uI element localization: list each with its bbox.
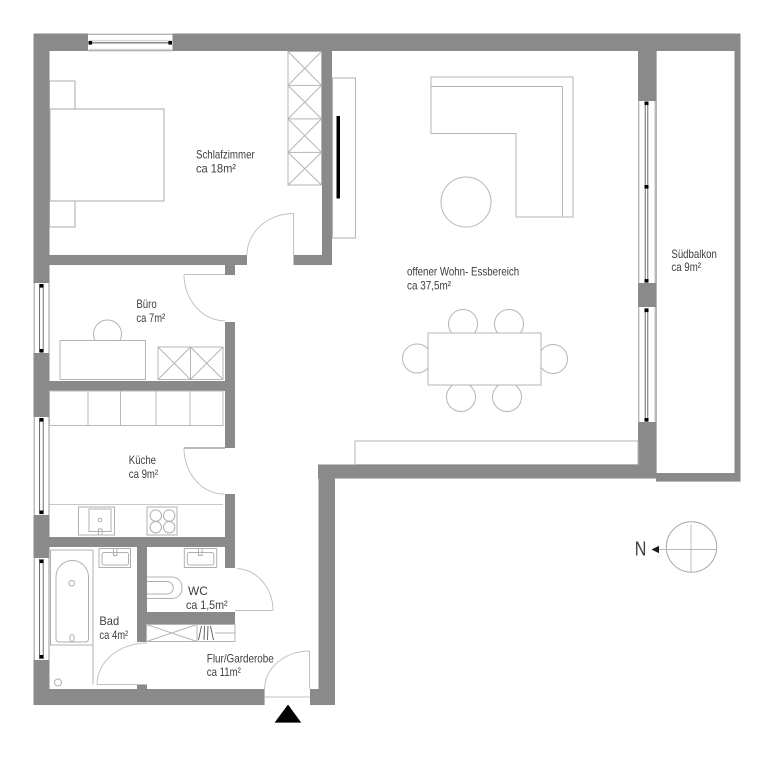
svg-text:ca 1,5m²: ca 1,5m²	[186, 598, 228, 612]
svg-text:ca 37,5m²: ca 37,5m²	[407, 279, 451, 293]
svg-text:N: N	[635, 539, 647, 561]
svg-text:WC: WC	[188, 584, 208, 598]
svg-text:Schlafzimmer: Schlafzimmer	[196, 148, 255, 162]
svg-text:ca 7m²: ca 7m²	[136, 311, 165, 325]
svg-text:ca 11m²: ca 11m²	[207, 665, 241, 679]
svg-text:ca 4m²: ca 4m²	[99, 628, 128, 642]
svg-text:ca 9m²: ca 9m²	[129, 467, 158, 481]
svg-text:Büro: Büro	[136, 297, 157, 311]
svg-text:Bad: Bad	[99, 614, 119, 628]
svg-text:ca 18m²: ca 18m²	[196, 162, 236, 176]
svg-text:ca 9m²: ca 9m²	[671, 260, 701, 274]
svg-text:offener Wohn- Essbereich: offener Wohn- Essbereich	[407, 265, 519, 279]
svg-text:Flur/Garderobe: Flur/Garderobe	[207, 652, 274, 666]
svg-text:Küche: Küche	[129, 453, 156, 467]
svg-text:Südbalkon: Südbalkon	[671, 247, 717, 261]
